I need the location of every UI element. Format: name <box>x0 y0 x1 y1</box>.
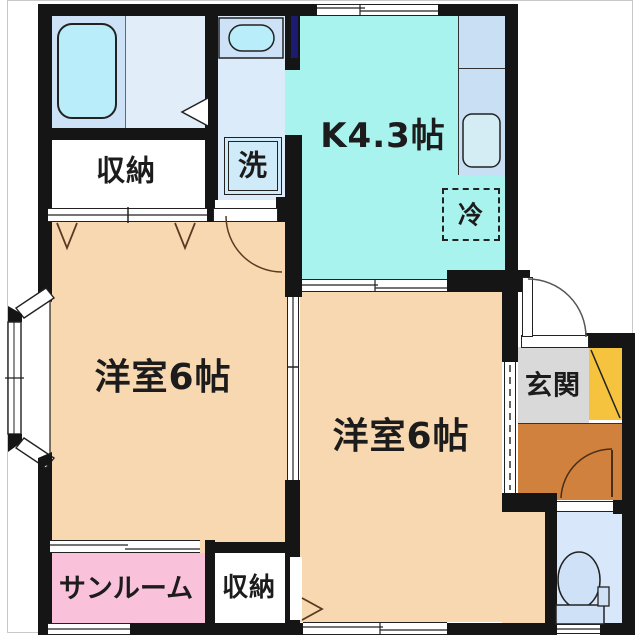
bathroom-tub-area <box>48 15 125 128</box>
wall-bottom-1 <box>38 623 48 635</box>
wall-right-outer <box>622 333 635 635</box>
floorplan: K4.3帖 洋室6帖 洋室6帖 収納 収納 洗 冷 玄関 サンルーム <box>0 0 640 640</box>
washroom-door-opening <box>213 208 278 222</box>
counter-divider <box>459 68 506 69</box>
refrigerator-label: 冷 <box>458 203 484 228</box>
entrance-label: 玄関 <box>525 373 581 400</box>
wall-kitchen-right <box>505 4 518 292</box>
toilet-room <box>557 512 622 624</box>
wall-bottom-3 <box>447 623 557 635</box>
wall-top-left <box>38 4 317 16</box>
wall-toilet-left <box>545 512 557 635</box>
storage-bottom-opening <box>290 557 302 620</box>
bathroom-floor-area <box>125 15 206 128</box>
wall-right-room-east-upper <box>502 278 518 362</box>
washing-machine-label: 洗 <box>238 152 268 181</box>
room-left-label: 洋室6帖 <box>94 360 231 396</box>
room-right-window <box>303 622 447 635</box>
wall-window-glass <box>291 16 298 58</box>
closet-sliding-front <box>48 208 207 222</box>
kitchen-counter <box>458 16 506 175</box>
western-room-right-annex <box>502 512 545 623</box>
wall-hall-toilet-b <box>613 500 622 514</box>
wall-storage-bottom-top <box>207 542 290 553</box>
wall-bathroom-bottom <box>38 128 217 140</box>
room-right-label: 洋室6帖 <box>332 419 469 455</box>
entrance-door-leaf <box>522 277 533 337</box>
kitchen-label: K4.3帖 <box>320 119 446 153</box>
kitchen-window <box>317 4 438 16</box>
wall-sunroom-right <box>205 540 215 635</box>
kitchen-sliding-door <box>302 279 447 292</box>
sunroom-top-window <box>50 540 200 553</box>
sunroom-label: サンルーム <box>59 576 193 603</box>
room-partition-sliding-door <box>287 297 299 480</box>
wall-left-upper <box>38 4 52 294</box>
storage-top-label: 収納 <box>96 157 156 186</box>
kitchen-washroom-opening <box>285 70 300 135</box>
shoe-cabinet <box>589 347 622 420</box>
wall-washroom-left <box>205 15 218 200</box>
entrance-room-sliding-door <box>504 362 516 493</box>
sunroom-bottom-window <box>48 623 130 635</box>
wall-bottom-2 <box>130 623 303 635</box>
corridor <box>518 423 622 500</box>
wall-hall-toilet-a <box>545 500 557 514</box>
toilet-door-opening <box>557 501 613 512</box>
storage-bottom-label: 収納 <box>222 575 276 601</box>
toilet-window <box>557 624 600 634</box>
wall-door-corner <box>276 197 302 222</box>
